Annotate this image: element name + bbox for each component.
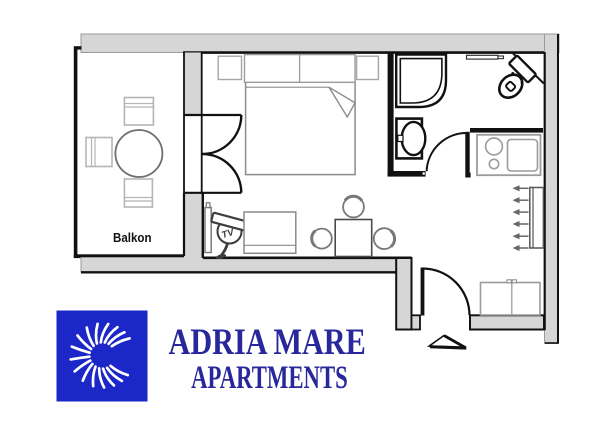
svg-text:APARTMENTS: APARTMENTS (191, 360, 348, 396)
svg-text:ADRIA MARE: ADRIA MARE (169, 322, 366, 363)
svg-text:Balkon: Balkon (113, 230, 152, 245)
